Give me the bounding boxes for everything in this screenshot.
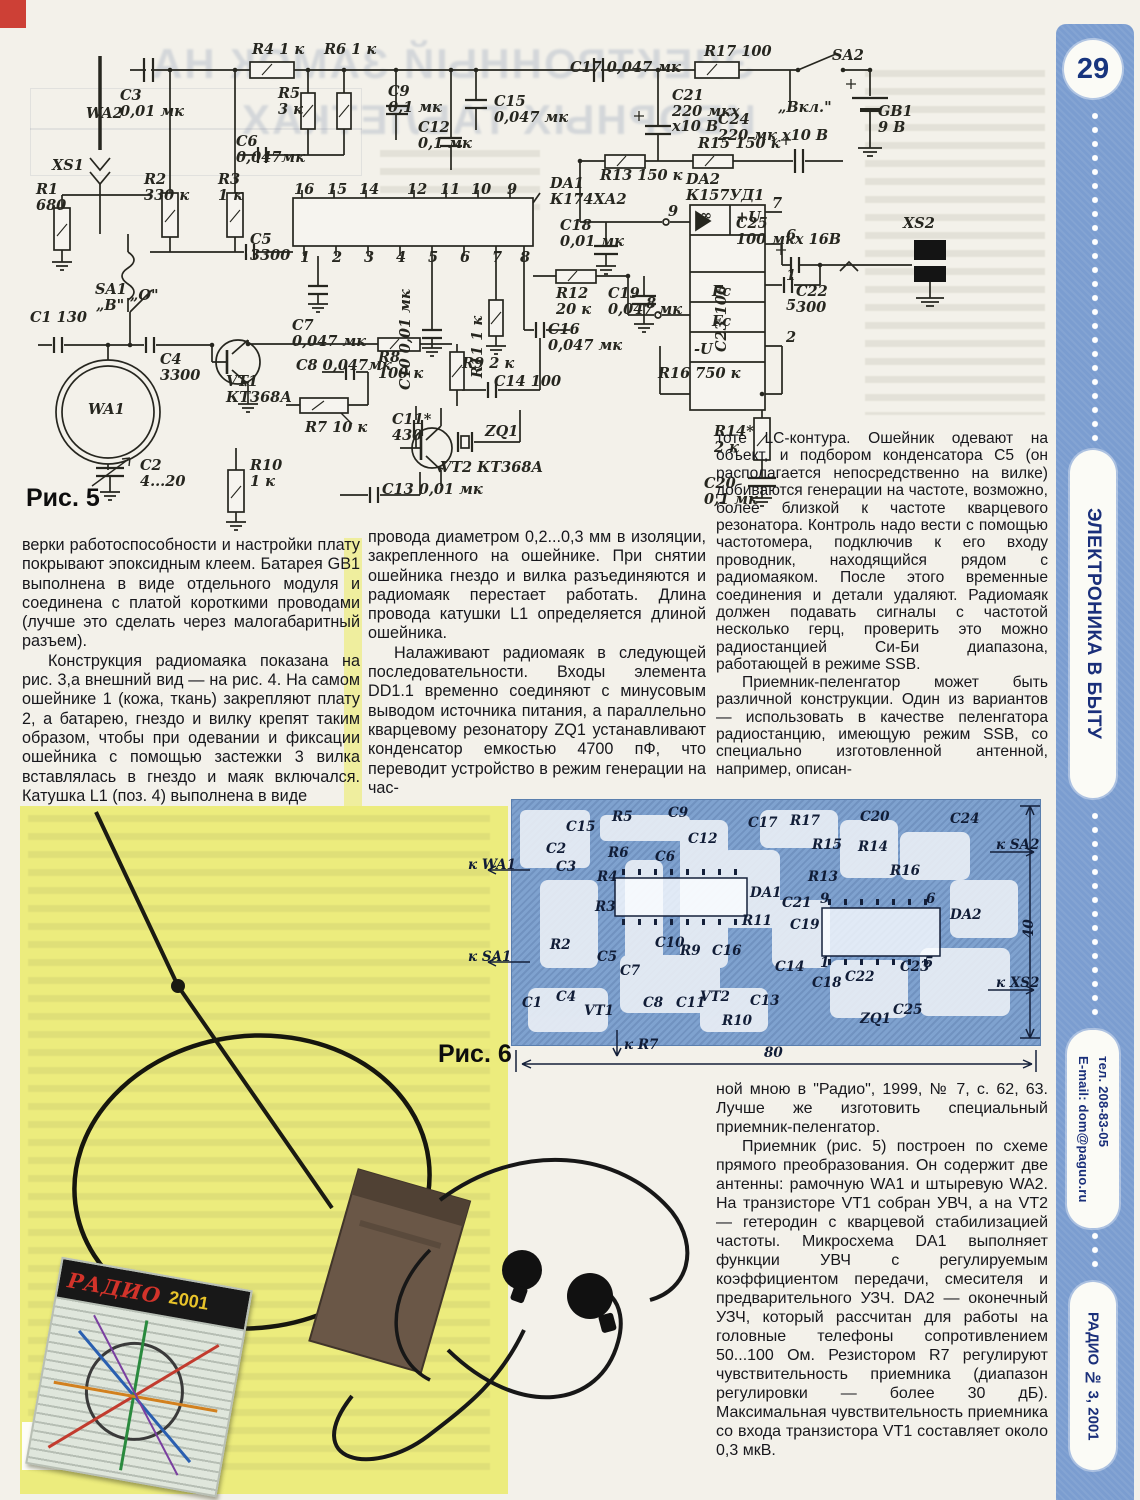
schematic-label: 4: [396, 250, 406, 266]
sidebar-dots: [1092, 1232, 1098, 1274]
pcb-label: R3: [595, 900, 616, 914]
pcb-label: 40: [1022, 919, 1036, 938]
schematic-label: 6: [786, 228, 796, 244]
schematic-label: R1 680: [36, 182, 66, 213]
schematic-label: 1: [786, 268, 796, 284]
schematic-label: 12: [407, 182, 427, 198]
pcb-label: C5: [597, 950, 617, 964]
contact-info: E-mail: dom@paguo.ru тел. 208-83-05: [1073, 1056, 1113, 1203]
pcb-label: DA2: [950, 908, 982, 922]
schematic-label: ZQ1: [485, 424, 518, 440]
pcb-label: C2: [546, 842, 566, 856]
metro-map-graphic: [28, 1296, 240, 1494]
pcb-label: C15: [566, 820, 596, 834]
schematic-label: C1 130: [30, 310, 87, 326]
pcb-label: R13: [808, 870, 838, 884]
pcb-label: 9: [820, 892, 829, 906]
schematic-label: C12 0,1 мк: [418, 120, 472, 151]
pcb-label: C24: [950, 812, 980, 826]
schematic-label: C3 0,01 мк: [120, 88, 184, 119]
pcb-label: C7: [620, 964, 640, 978]
issue-text: РАДИО № 3, 2001: [1085, 1312, 1102, 1441]
pcb-label: C21: [782, 896, 812, 910]
schematic-label: -U: [694, 342, 713, 358]
schematic-label: SA2: [832, 48, 864, 64]
schematic-label: WA2: [86, 106, 123, 122]
pcb-label: R9: [680, 944, 701, 958]
schematic-label: 2: [786, 330, 796, 346]
calendar-card-map: [28, 1296, 244, 1494]
schematic-label: 7: [772, 196, 782, 212]
paragraph: ной мною в "Радио", 1999, № 7, с. 62, 63…: [716, 1080, 1048, 1137]
fig6-caption: Рис. 6: [438, 1040, 512, 1069]
schematic-label: GB1 9 В: [878, 104, 913, 135]
schematic-label: XS2: [903, 216, 935, 232]
pcb-label: C1: [522, 996, 542, 1010]
schematic-label: 9: [668, 204, 678, 220]
schematic-label: R12 20 к: [556, 286, 591, 317]
schematic-label: C7 0,047 мк: [292, 318, 366, 349]
pcb-label: C3: [556, 860, 576, 874]
paragraph: Приемник-пеленгатор может быть различной…: [716, 674, 1048, 778]
pcb-label: C6: [655, 850, 675, 864]
schematic-label: C22 300: [796, 284, 828, 315]
schematic-label: C5 3300: [250, 232, 290, 263]
pcb-label: DA1: [750, 886, 782, 900]
text-column-bottom-right: ной мною в "Радио", 1999, № 7, с. 62, 63…: [716, 1080, 1048, 1460]
page-corner-mark: [0, 0, 26, 28]
contact-banner: E-mail: dom@paguo.ru тел. 208-83-05: [1067, 1030, 1119, 1228]
pcb-label: VT1: [584, 1004, 614, 1018]
schematic-label: R9 2 к: [462, 356, 514, 372]
schematic-label: C9 0,1 мк: [388, 84, 442, 115]
schematic-label: R5 3 к: [278, 86, 303, 117]
schematic-label: R10 1 к: [250, 458, 282, 489]
calendar-card-year: 2001: [167, 1287, 210, 1315]
pcb-label: C12: [688, 832, 718, 846]
schematic-label: R7 10 к: [305, 420, 367, 436]
section-banner: ЭЛЕКТРОНИКА В БЫТУ: [1070, 450, 1116, 798]
schematic-label: SA1: [95, 282, 127, 298]
pcb-label: ZQ1: [860, 1012, 891, 1026]
schematic-label: R2 330 к: [144, 172, 189, 203]
schematic-label: C17 0,047 мк: [570, 60, 681, 76]
schematic-label: WA1: [88, 402, 125, 418]
schematic-label: R4 1 к: [252, 42, 304, 58]
pcb-label: к XS2: [996, 976, 1039, 990]
schematic-label: C16 0,047 мк: [548, 322, 622, 353]
schematic-label: C18 0,01 мк: [560, 218, 624, 249]
pcb-label: R6: [608, 846, 629, 860]
schematic-label: VT1 КТ368А: [226, 374, 292, 405]
schematic-label: „О": [130, 288, 159, 304]
schematic-label: C4 3300: [160, 352, 200, 383]
text-column-left: верки работоспособности и настройки плат…: [22, 536, 360, 806]
schematic-label: DA1 К174ХА2: [550, 176, 627, 207]
pcb-label: C8: [643, 996, 663, 1010]
schematic-label: ∞: [700, 208, 712, 224]
pcb-label: R17: [790, 814, 820, 828]
paragraph: провода диаметром 0,2...0,3 мм в изоляци…: [368, 528, 706, 644]
pcb-label: C16: [712, 944, 742, 958]
pcb-label: C14: [775, 960, 805, 974]
schematic-label: C14 100: [494, 374, 561, 390]
section-title: ЭЛЕКТРОНИКА В БЫТУ: [1082, 508, 1104, 739]
pcb-label: 5: [924, 956, 933, 970]
schematic-label: C8 0,047мк: [296, 358, 392, 374]
sidebar-dots: [1092, 812, 1098, 1022]
schematic-label: 2: [332, 250, 342, 266]
schematic-label: 5: [428, 250, 438, 266]
phone-text: тел. 208-83-05: [1093, 1056, 1113, 1203]
calendar-card: РАДИО 2001: [25, 1257, 253, 1497]
pcb-label: 1: [820, 956, 829, 970]
schematic-label: R6 1 к: [324, 42, 376, 58]
schematic-label: R3 1 к: [218, 172, 243, 203]
bleed-table: [30, 88, 362, 130]
schematic-label: 8: [520, 250, 530, 266]
schematic-label: 14: [359, 182, 379, 198]
bleed-text-area: [380, 150, 540, 210]
pcb-label: к WA1: [468, 858, 516, 872]
schematic-label: R16 750 к: [658, 366, 740, 382]
schematic-label: +U: [736, 210, 761, 226]
text-column-middle: провода диаметром 0,2...0,3 мм в изоляци…: [368, 528, 706, 798]
schematic-label: C15 0,047 мк: [494, 94, 568, 125]
schematic-label: 5: [786, 298, 796, 314]
schematic-label: 8: [646, 296, 656, 312]
pcb-label: к SA1: [468, 950, 511, 964]
sidebar-dots: [1092, 112, 1098, 442]
schematic-label: „В": [96, 298, 124, 314]
schematic-label: 15: [327, 182, 347, 198]
pcb-label: C4: [556, 990, 576, 1004]
pcb-label: R10: [722, 1014, 752, 1028]
pcb-label: R14: [858, 840, 888, 854]
pcb-label: R2: [550, 938, 571, 952]
pcb-label: VT2: [700, 990, 730, 1004]
pcb-label: к SA2: [996, 838, 1039, 852]
schematic-label: R17 100: [704, 44, 772, 60]
page-number-badge: 29: [1064, 40, 1122, 98]
email-text: E-mail: dom@paguo.ru: [1073, 1056, 1093, 1203]
schematic-label: 9: [507, 182, 517, 198]
pcb-label: C17: [748, 816, 778, 830]
text-column-right: тоте LC-контура. Ошейник одевают на объе…: [716, 430, 1048, 778]
pcb-label: C9: [668, 806, 688, 820]
schematic-label: C11* 430: [392, 412, 431, 443]
pcb-label: C20: [860, 810, 890, 824]
paragraph: Налаживают радиомаяк в следующей последо…: [368, 644, 706, 798]
pcb-label: C18: [812, 976, 842, 990]
schematic-label: R15 150 к: [698, 136, 780, 152]
fig5-caption: Рис. 5: [26, 484, 100, 513]
schematic-label: 1: [300, 250, 310, 266]
pcb-label: C19: [790, 918, 820, 932]
schematic-label: C13 0,01 мк: [382, 482, 483, 498]
schematic-label: C2 4...20: [140, 458, 185, 489]
pcb-label: C22: [845, 970, 875, 984]
pcb-label: R11: [742, 914, 772, 928]
schematic-label: DA2 К157УД1: [686, 172, 764, 203]
paragraph: тоте LC-контура. Ошейник одевают на объе…: [716, 430, 1048, 674]
pcb-label: к R7: [624, 1038, 658, 1052]
schematic-label: 10: [471, 182, 491, 198]
schematic-label: 16: [294, 182, 314, 198]
paragraph: Приемник (рис. 5) построен по схеме прям…: [716, 1137, 1048, 1460]
magazine-page: ЭЛЕКТРОННЫЙ ЗАМОК НА ИБОРНЫХ ТАБЛЕТКАХ: [0, 0, 1140, 1500]
paragraph: верки работоспособности и настройки плат…: [22, 536, 360, 652]
schematic-label: XS1: [52, 158, 84, 174]
schematic-label: 11: [440, 182, 460, 198]
pcb-label: 80: [764, 1046, 783, 1060]
pcb-label: C25: [893, 1003, 923, 1017]
pcb-label: R5: [612, 810, 633, 824]
schematic-label: Fc: [712, 284, 731, 300]
pcb-label: 6: [926, 892, 935, 906]
schematic-label: 3: [364, 250, 374, 266]
issue-banner: РАДИО № 3, 2001: [1070, 1282, 1116, 1470]
schematic-label: C6 0,047мк: [236, 134, 305, 165]
pcb-label: R15: [812, 838, 842, 852]
page-number: 29: [1077, 53, 1109, 86]
schematic-label: Fc: [712, 314, 731, 330]
schematic-label: VT2 КТ368А: [440, 460, 543, 476]
paragraph: Конструкция радиомаяка показана на рис. …: [22, 652, 360, 806]
pcb-label: R4: [597, 870, 618, 884]
pcb-label: C13: [750, 994, 780, 1008]
pcb-label: R16: [890, 864, 920, 878]
schematic-label: 7: [492, 250, 502, 266]
schematic-label: 6: [460, 250, 470, 266]
